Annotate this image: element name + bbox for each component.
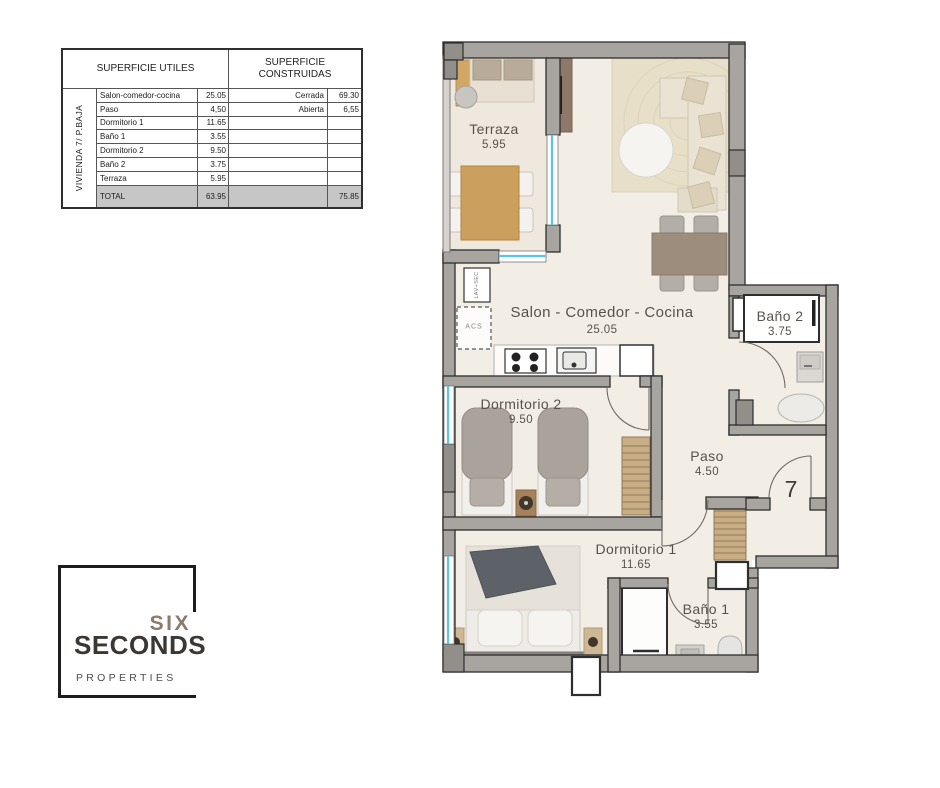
- room-label-bano2: Baño 2 3.75: [757, 307, 804, 340]
- table-row-cvalue: 69.30: [328, 89, 361, 103]
- hob: [505, 349, 546, 373]
- surface-area-table: SUPERFICIE UTILES SUPERFICIE CONSTRUIDAS…: [61, 48, 363, 209]
- header-superficie-construidas: SUPERFICIE CONSTRUIDAS: [229, 50, 361, 89]
- table-row-value: 9.50: [198, 144, 229, 158]
- terrace-parapet: [443, 56, 450, 252]
- room-label-salon: Salon - Comedor - Cocina 25.05: [510, 303, 693, 337]
- fridge: [620, 345, 653, 376]
- table-row-value: 4,50: [198, 103, 229, 117]
- unit-number: 7: [785, 476, 798, 503]
- table-row-label: Dormitorio 2: [97, 144, 198, 158]
- floor-plan-page: Terraza 5.95 Salon - Comedor - Cocina 25…: [0, 0, 940, 788]
- six-seconds-logo: SIX SECONDS PROPERTIES: [58, 565, 196, 698]
- table-row-value: 25.05: [198, 89, 229, 103]
- table-row-label: Baño 1: [97, 130, 198, 144]
- table-row-label: Paso: [97, 103, 198, 117]
- room-label-paso: Paso 4.50: [690, 447, 724, 480]
- total-label: TOTAL: [97, 186, 198, 207]
- table-row-value: 3.75: [198, 158, 229, 172]
- logo-frame-right-stub: [193, 565, 196, 612]
- table-row-label: Salon-comedor-cocina: [97, 89, 198, 103]
- table-row-value: 3.55: [198, 130, 229, 144]
- table-row-clabel: Cerrada: [229, 89, 328, 103]
- room-label-dormitorio1: Dormitorio 1 11.65: [595, 540, 676, 573]
- table-row-label: Dormitorio 1: [97, 117, 198, 131]
- laundry-label: LAV+SEC: [474, 271, 480, 298]
- logo-word-properties: PROPERTIES: [76, 672, 177, 684]
- vivienda-group-label: VIVIENDA 7/ P.BAJA: [75, 105, 85, 191]
- wardrobe: [622, 437, 650, 515]
- total-cvalue: 75.85: [328, 186, 361, 207]
- wardrobe: [714, 504, 746, 560]
- room-label-terraza: Terraza 5.95: [469, 120, 518, 153]
- side-table: [455, 86, 477, 108]
- room-label-dormitorio2: Dormitorio 2 9.50: [480, 395, 561, 428]
- table-row-value: 5.95: [198, 172, 229, 186]
- kitchen: [494, 345, 654, 376]
- total-value: 63.95: [198, 186, 229, 207]
- logo-word-seconds: SECONDS: [74, 630, 206, 661]
- table-row-clabel: Abierta: [229, 103, 328, 117]
- room-label-bano1: Baño 1 3.55: [683, 600, 730, 633]
- water-heater-label: ACS: [465, 324, 482, 331]
- header-superficie-utiles: SUPERFICIE UTILES: [63, 50, 229, 89]
- table-row-value: 11.65: [198, 117, 229, 131]
- bathtub: [778, 394, 824, 422]
- coffee-table: [619, 123, 673, 177]
- table-row-label: Baño 2: [97, 158, 198, 172]
- table-row-label: Terraza: [97, 172, 198, 186]
- vivienda-group-cell: VIVIENDA 7/ P.BAJA: [63, 89, 97, 207]
- table-row-cvalue: 6,55: [328, 103, 361, 117]
